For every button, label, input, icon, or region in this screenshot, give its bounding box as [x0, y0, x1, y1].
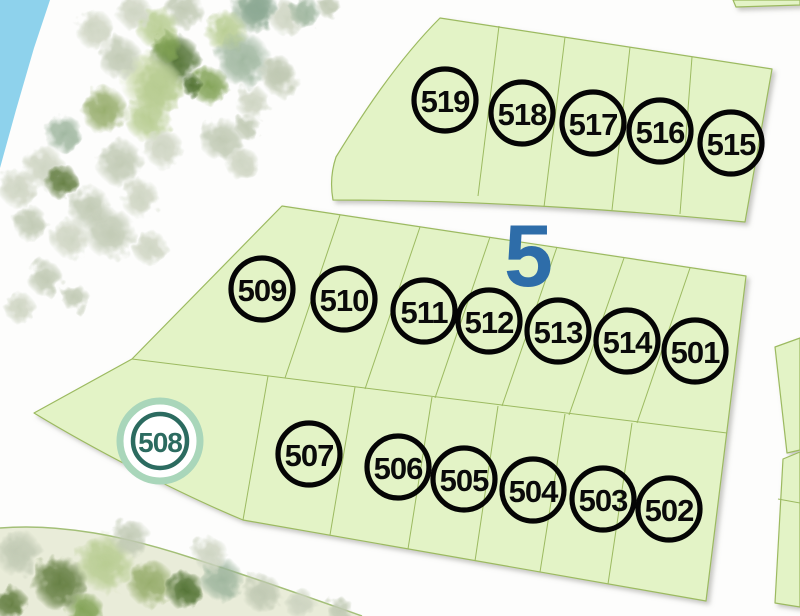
lot-number-label: 511 [400, 295, 448, 330]
site-plan-map: 5195185175165155095105115125135145015085… [0, 0, 800, 616]
tree-canopy [181, 75, 203, 97]
tree-canopy [80, 86, 128, 134]
block-number-label: 5 [504, 212, 551, 300]
tree-canopy [50, 218, 90, 258]
tree-canopy [326, 596, 354, 616]
tree-canopy [12, 205, 48, 241]
tree-canopy [259, 55, 295, 91]
plat-map-canvas: 5195185175165155095105115125135145015085… [0, 0, 800, 616]
lot-number-label: 507 [285, 438, 334, 473]
lot-number-label: 508 [138, 427, 182, 458]
lot-number-label: 513 [534, 315, 583, 350]
tree-canopy [242, 573, 282, 613]
lot-number-label: 509 [238, 273, 287, 308]
parcel-edge-top [733, 0, 800, 7]
lot-number-label: 518 [498, 97, 547, 132]
tree-canopy [165, 570, 205, 610]
tree-canopy [44, 164, 80, 200]
lot-number-label: 519 [421, 84, 470, 119]
tree-canopy [235, 85, 269, 119]
tree-canopy [61, 284, 89, 312]
lot-marker-508[interactable]: 508 [120, 401, 200, 481]
tree-canopy [132, 230, 168, 266]
lot-number-label: 510 [320, 283, 369, 318]
tree-canopy [143, 128, 183, 168]
tree-canopy [120, 178, 160, 218]
lot-number-label: 514 [603, 325, 653, 360]
parcel-neighbor-upper [775, 338, 800, 453]
tree-canopy [235, 115, 261, 141]
tree-canopy [27, 260, 63, 296]
lot-number-label: 515 [707, 127, 756, 162]
parcel-neighbor-lower [775, 452, 800, 607]
tree-canopy [192, 536, 228, 572]
tree-canopy [75, 10, 115, 50]
tree-canopy [4, 292, 36, 324]
lot-number-label: 517 [569, 107, 618, 142]
lot-number-label: 503 [579, 483, 628, 518]
tree-canopy [84, 207, 136, 259]
lot-number-label: 502 [645, 493, 694, 528]
lot-number-label: 505 [440, 463, 489, 498]
tree-canopy [151, 30, 183, 62]
lot-number-label: 504 [509, 474, 559, 509]
lot-number-label: 512 [465, 305, 514, 340]
lot-number-label: 516 [636, 115, 685, 150]
tree-canopy [318, 0, 342, 20]
tree-canopy [110, 518, 150, 558]
lot-number-label: 501 [671, 335, 720, 370]
water-area [0, 0, 50, 168]
tree-canopy [225, 146, 259, 180]
lot-number-label: 506 [374, 451, 423, 486]
